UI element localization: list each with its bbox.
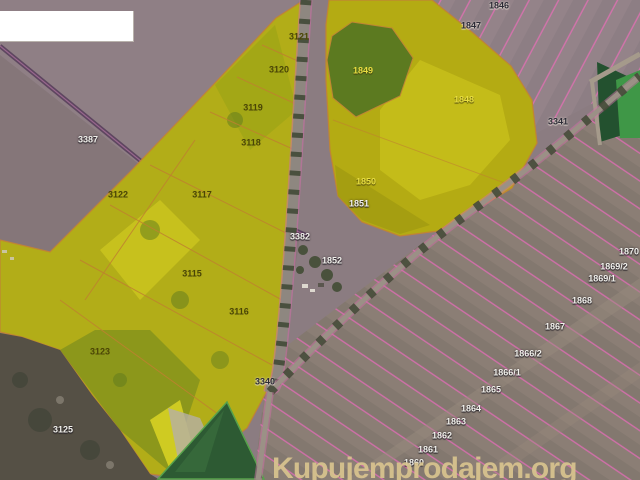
parcel-label: 1870 — [619, 248, 639, 257]
parcel-label: 1863 — [446, 418, 466, 427]
parcel-label: 3121 — [289, 33, 309, 42]
parcel-label: 1849 — [353, 67, 373, 76]
parcel-label: 3382 — [290, 233, 310, 242]
map-view: 3387 3121 3120 3119 3118 3122 3117 3115 … — [0, 0, 640, 480]
parcel-label: 1847 — [461, 22, 481, 31]
parcel-label: 3116 — [229, 308, 249, 317]
parcel-label: 1862 — [432, 432, 452, 441]
parcel-label: 1866/2 — [514, 350, 542, 359]
parcel-label: 3341 — [548, 118, 568, 127]
parcel-label: 3119 — [243, 104, 263, 113]
parcel-label: 3123 — [90, 348, 110, 357]
parcel-label: 1869/2 — [600, 263, 628, 272]
parcel-label: 1852 — [322, 257, 342, 266]
watermark-text: Kupujemprodajem.org — [272, 452, 577, 480]
parcel-label: 1864 — [461, 405, 481, 414]
parcel-label: 1850 — [356, 178, 376, 187]
parcel-label: 1865 — [481, 386, 501, 395]
parcel-label: 1869/1 — [588, 275, 616, 284]
parcel-label: 3387 — [78, 136, 98, 145]
parcel-label: 1868 — [572, 297, 592, 306]
parcel-label: 3115 — [182, 270, 202, 279]
parcel-label: 3122 — [108, 191, 128, 200]
parcel-label: 3117 — [192, 191, 212, 200]
satellite-map — [0, 0, 640, 480]
blank-cover-box — [0, 11, 134, 42]
parcel-label: 3118 — [241, 139, 261, 148]
parcel-label: 3340 — [255, 378, 275, 387]
parcel-label: 1851 — [349, 200, 369, 209]
parcel-label: 1848 — [454, 96, 474, 105]
parcel-label: 1866/1 — [493, 369, 521, 378]
parcel-label: 1867 — [545, 323, 565, 332]
parcel-label: 1846 — [489, 2, 509, 11]
parcel-label: 3125 — [53, 426, 73, 435]
parcel-label: 3120 — [269, 66, 289, 75]
